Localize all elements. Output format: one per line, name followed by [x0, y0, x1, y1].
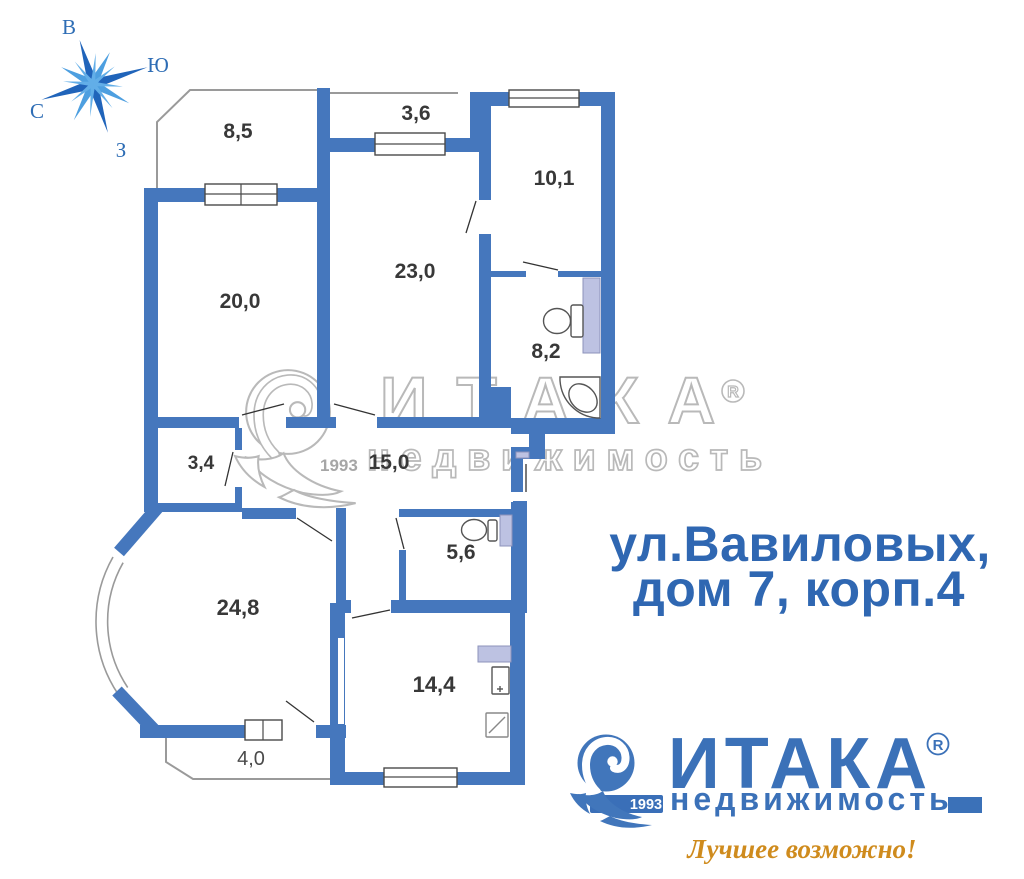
svg-text:14,4: 14,4 [413, 672, 457, 697]
svg-text:Лучшее возможно!: Лучшее возможно! [686, 834, 916, 864]
svg-text:24,8: 24,8 [217, 595, 260, 620]
svg-text:8,5: 8,5 [223, 120, 253, 143]
svg-text:15,0: 15,0 [369, 451, 410, 474]
svg-text:R: R [727, 384, 739, 401]
svg-text:1993: 1993 [630, 797, 662, 813]
svg-text:8,2: 8,2 [531, 340, 560, 363]
svg-text:10,1: 10,1 [534, 167, 575, 190]
svg-text:Ю: Ю [147, 53, 169, 77]
svg-text:R: R [933, 737, 944, 754]
svg-text:20,0: 20,0 [220, 290, 261, 313]
svg-text:4,0: 4,0 [237, 748, 265, 770]
svg-text:3,6: 3,6 [401, 102, 430, 125]
svg-text:1993: 1993 [320, 456, 358, 475]
svg-text:23,0: 23,0 [395, 260, 436, 283]
svg-text:С: С [30, 99, 44, 123]
svg-text:недвижимость: недвижимость [367, 437, 773, 479]
svg-text:3,4: 3,4 [188, 453, 215, 474]
svg-text:В: В [62, 15, 76, 39]
svg-text:З: З [116, 138, 127, 162]
svg-text:5,6: 5,6 [446, 541, 475, 564]
svg-text:недвижимость: недвижимость [670, 781, 953, 817]
svg-text:дом 7, корп.4: дом 7, корп.4 [633, 561, 965, 617]
